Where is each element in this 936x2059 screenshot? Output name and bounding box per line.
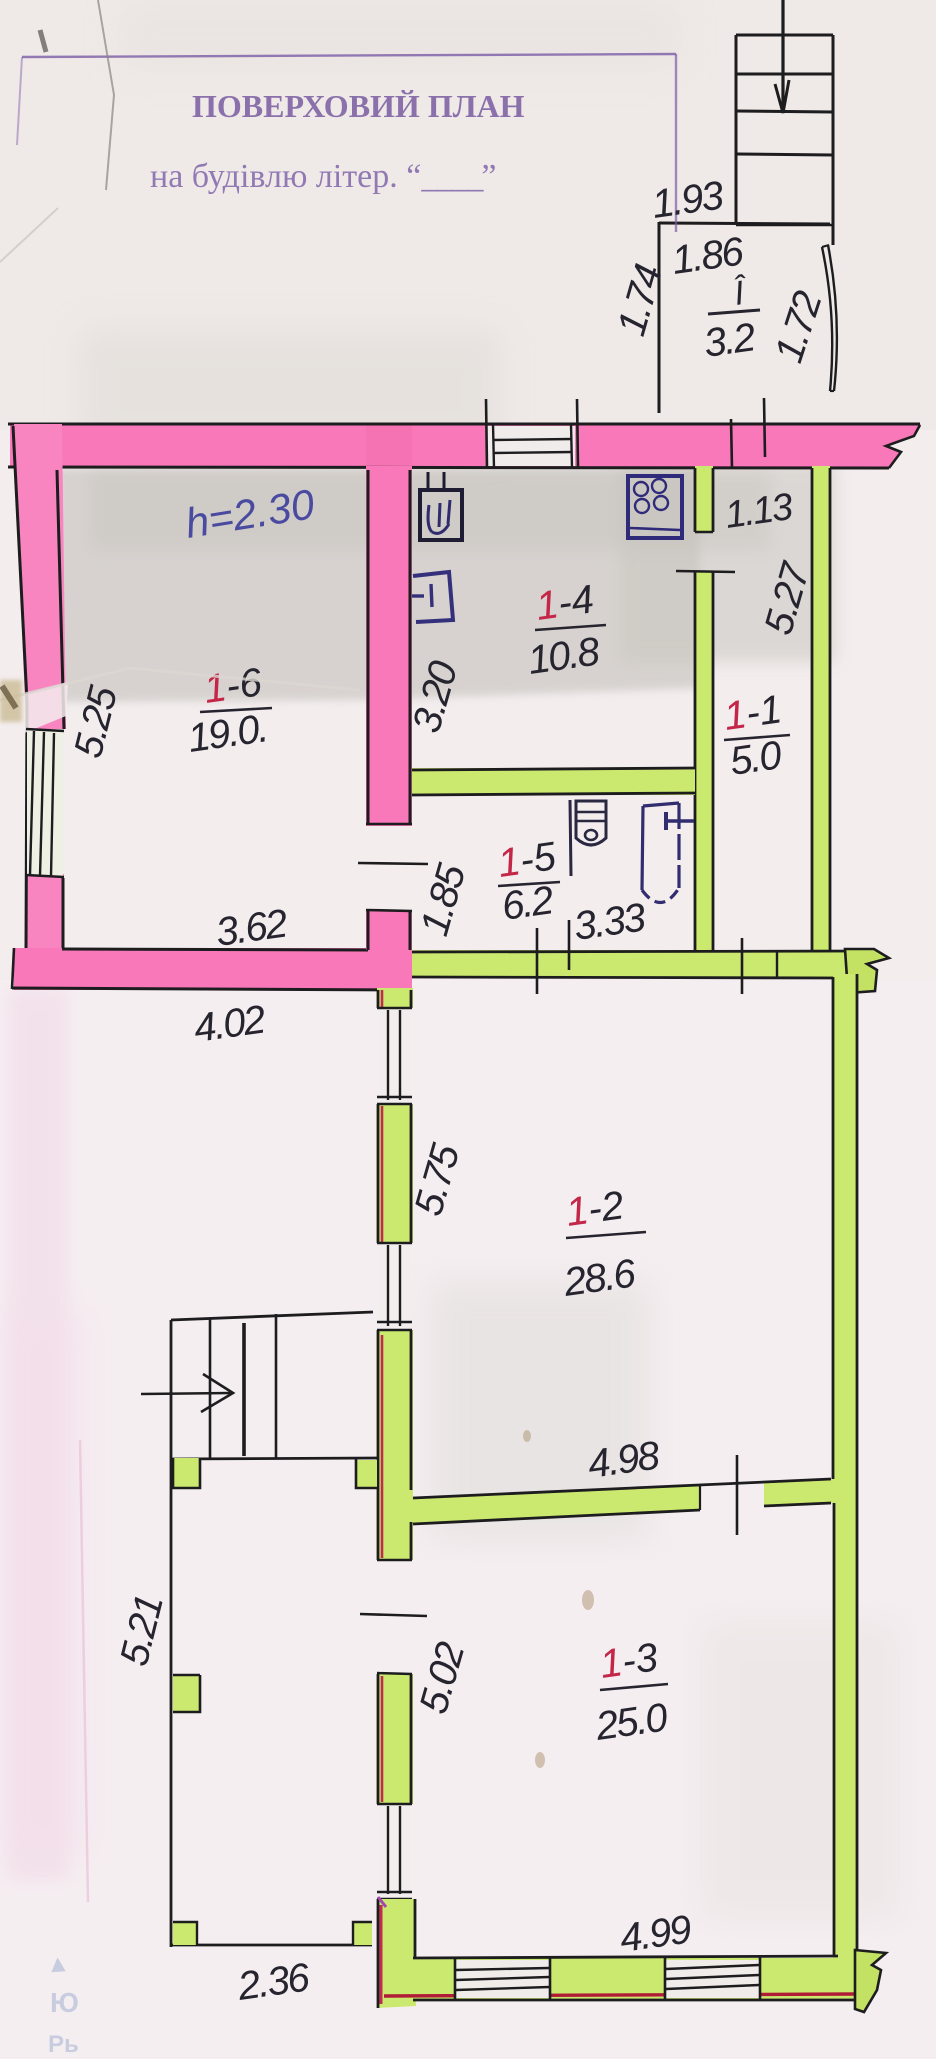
svg-text:1-2: 1-2 — [563, 1183, 626, 1235]
svg-text:6.2: 6.2 — [499, 878, 556, 929]
svg-text:ПОВЕРХОВИЙ ПЛАН: ПОВЕРХОВИЙ ПЛАН — [192, 88, 525, 124]
svg-text:1-6: 1-6 — [201, 660, 265, 712]
svg-text:Рь: Рь — [48, 2031, 79, 2058]
svg-text:1-1: 1-1 — [721, 687, 784, 739]
svg-text:1-5: 1-5 — [495, 834, 559, 886]
svg-text:на будівлю літер. “____”: на будівлю літер. “____” — [150, 158, 496, 195]
svg-text:1-4: 1-4 — [533, 577, 596, 629]
svg-text:1-3: 1-3 — [597, 1635, 660, 1687]
svg-text:5.0: 5.0 — [727, 733, 784, 784]
svg-text:Ю: Ю — [50, 1987, 79, 2018]
svg-text:3.2: 3.2 — [701, 315, 758, 366]
